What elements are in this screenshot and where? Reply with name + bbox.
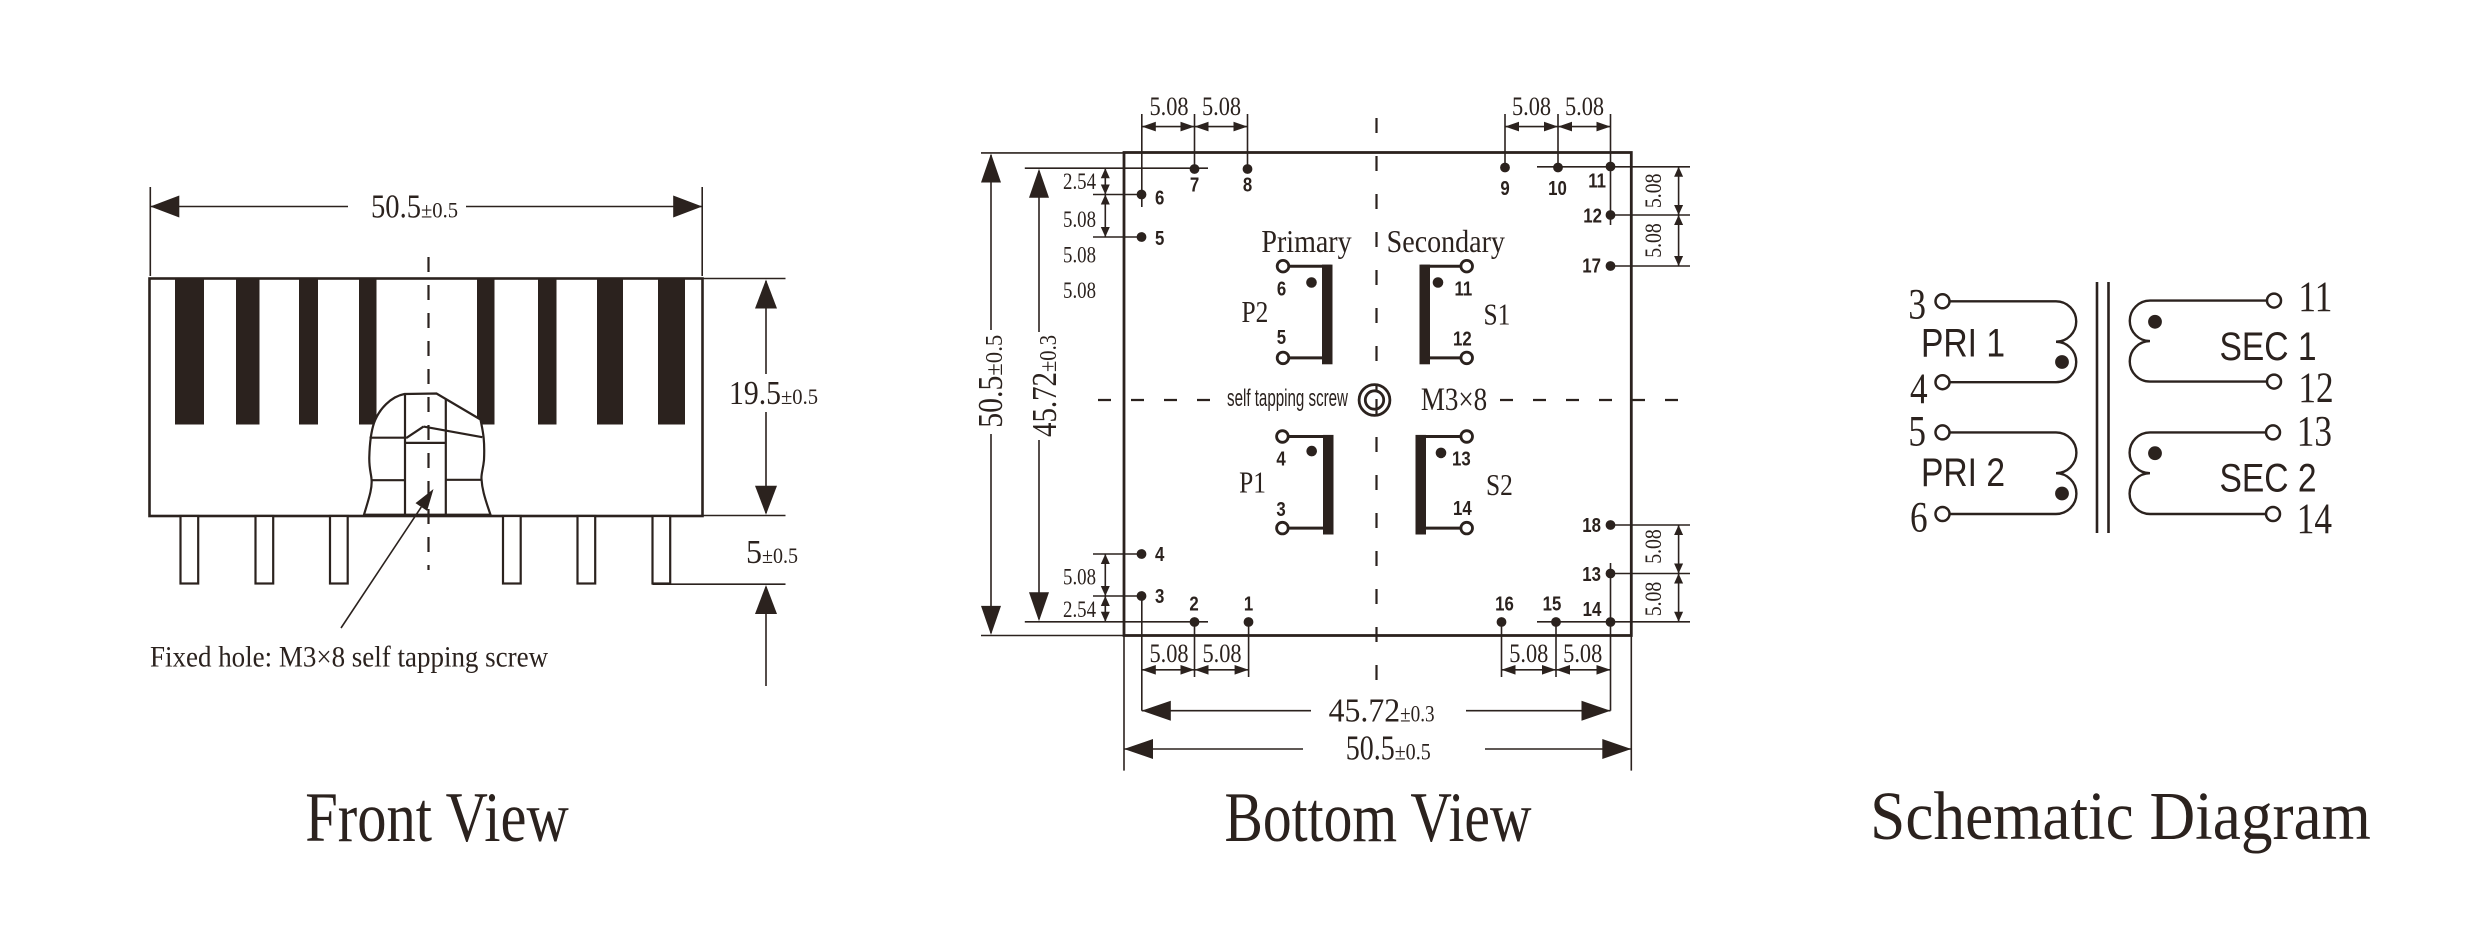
svg-text:5.08: 5.08 xyxy=(1565,92,1604,121)
svg-text:5: 5 xyxy=(1155,226,1164,249)
svg-text:SEC 1: SEC 1 xyxy=(2219,324,2316,368)
svg-text:5: 5 xyxy=(1908,407,1926,455)
svg-text:Bottom View: Bottom View xyxy=(1225,777,1532,856)
svg-text:5.08: 5.08 xyxy=(1509,639,1548,668)
svg-text:4: 4 xyxy=(1910,365,1928,413)
svg-text:P1: P1 xyxy=(1239,466,1266,500)
svg-text:2.54: 2.54 xyxy=(1063,596,1096,622)
svg-text:5.08: 5.08 xyxy=(1563,639,1602,668)
svg-text:12: 12 xyxy=(1583,204,1602,227)
svg-text:1: 1 xyxy=(1244,592,1253,615)
svg-text:5.08: 5.08 xyxy=(1641,529,1667,564)
svg-text:self tapping screw: self tapping screw xyxy=(1227,386,1348,412)
svg-text:14: 14 xyxy=(2297,495,2333,543)
svg-text:5.08: 5.08 xyxy=(1641,174,1667,209)
svg-text:P2: P2 xyxy=(1241,296,1268,330)
svg-text:5.08: 5.08 xyxy=(1512,92,1551,121)
svg-text:SEC 2: SEC 2 xyxy=(2219,456,2316,500)
svg-text:Fixed hole: M3×8 self tapping: Fixed hole: M3×8 self tapping screw xyxy=(150,641,548,674)
svg-text:5.08: 5.08 xyxy=(1063,206,1096,232)
svg-text:5.08: 5.08 xyxy=(1063,564,1096,590)
svg-text:12: 12 xyxy=(1453,327,1472,350)
svg-text:14: 14 xyxy=(1453,497,1472,520)
svg-text:6: 6 xyxy=(1910,493,1928,541)
svg-text:7: 7 xyxy=(1190,173,1199,196)
svg-text:11: 11 xyxy=(1588,169,1606,192)
svg-text:11: 11 xyxy=(1455,277,1473,300)
svg-text:6: 6 xyxy=(1155,186,1164,209)
svg-text:13: 13 xyxy=(1582,562,1601,585)
svg-text:Schematic Diagram: Schematic Diagram xyxy=(1870,779,2371,855)
svg-text:3: 3 xyxy=(1276,498,1285,521)
svg-text:5.08: 5.08 xyxy=(1202,92,1241,121)
svg-text:5.08: 5.08 xyxy=(1149,639,1188,668)
svg-text:Front View: Front View xyxy=(305,779,569,858)
svg-text:12: 12 xyxy=(2298,364,2333,412)
svg-text:14: 14 xyxy=(1583,597,1602,620)
svg-text:16: 16 xyxy=(1495,592,1514,615)
svg-text:13: 13 xyxy=(2297,407,2332,455)
svg-text:PRI 1: PRI 1 xyxy=(1921,321,2005,365)
svg-text:17: 17 xyxy=(1582,254,1601,277)
svg-text:9: 9 xyxy=(1500,176,1509,199)
svg-text:S2: S2 xyxy=(1486,469,1513,503)
svg-text:5.08: 5.08 xyxy=(1063,277,1096,303)
svg-text:10: 10 xyxy=(1548,176,1567,199)
svg-text:5: 5 xyxy=(1277,325,1286,348)
svg-text:11: 11 xyxy=(2298,273,2332,321)
svg-text:5.08: 5.08 xyxy=(1641,223,1667,258)
svg-text:Secondary: Secondary xyxy=(1387,225,1505,260)
svg-text:3: 3 xyxy=(1155,584,1164,607)
svg-text:18: 18 xyxy=(1582,513,1601,536)
svg-text:5.08: 5.08 xyxy=(1641,582,1667,617)
svg-text:5.08: 5.08 xyxy=(1149,92,1188,121)
svg-text:M3×8: M3×8 xyxy=(1421,380,1487,417)
svg-text:6: 6 xyxy=(1277,277,1286,300)
svg-text:15: 15 xyxy=(1543,592,1562,615)
svg-text:PRI 2: PRI 2 xyxy=(1921,450,2005,494)
svg-text:8: 8 xyxy=(1243,173,1252,196)
svg-text:4: 4 xyxy=(1276,447,1286,470)
svg-text:Primary: Primary xyxy=(1261,225,1351,260)
svg-text:5.08: 5.08 xyxy=(1202,639,1241,668)
svg-text:S1: S1 xyxy=(1483,298,1510,332)
svg-text:13: 13 xyxy=(1452,447,1471,470)
svg-text:4: 4 xyxy=(1155,542,1165,565)
svg-text:2: 2 xyxy=(1189,592,1198,615)
svg-text:5.08: 5.08 xyxy=(1063,242,1096,268)
svg-text:2.54: 2.54 xyxy=(1063,168,1096,194)
